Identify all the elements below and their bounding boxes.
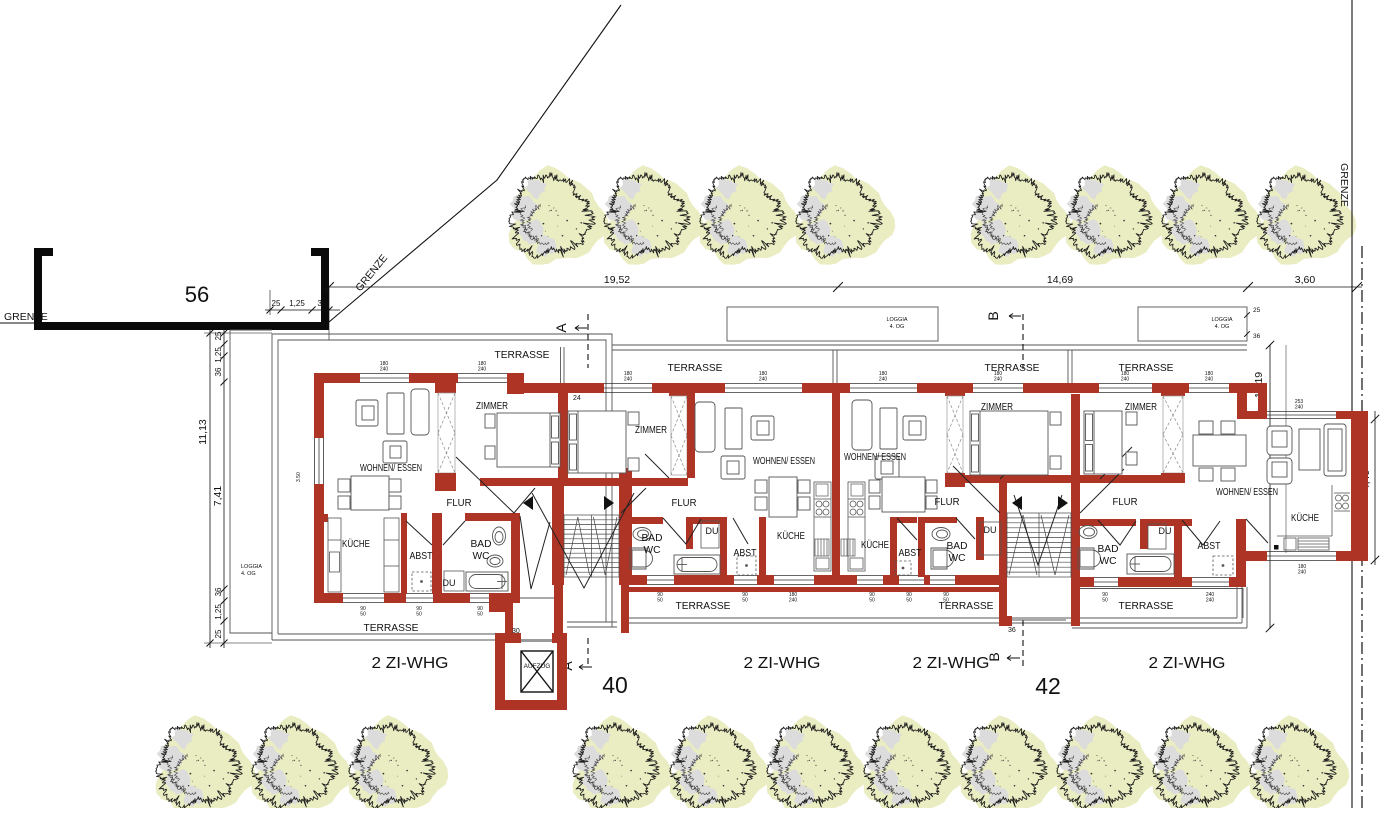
svg-text:24: 24 [573,395,581,402]
svg-text:WC: WC [644,544,661,556]
svg-text:2 ZI-WHG: 2 ZI-WHG [372,655,449,672]
svg-text:4. OG: 4. OG [241,571,256,577]
svg-text:240: 240 [478,367,487,373]
svg-text:19,52: 19,52 [604,274,630,286]
svg-text:50: 50 [906,598,912,604]
svg-text:50: 50 [416,612,422,618]
svg-text:WOHNEN/ ESSEN: WOHNEN/ ESSEN [844,451,906,463]
svg-text:ABST: ABST [410,550,433,562]
svg-text:7,41: 7,41 [212,486,224,507]
svg-text:TERRASSE: TERRASSE [668,362,723,374]
svg-text:DU: DU [984,525,997,536]
svg-text:TERRASSE: TERRASSE [364,622,419,634]
svg-text:42: 42 [1035,673,1061,699]
svg-text:36: 36 [1253,333,1261,340]
svg-text:2 ZI-WHG: 2 ZI-WHG [744,655,821,672]
svg-text:25: 25 [272,299,281,308]
svg-text:50: 50 [657,598,663,604]
svg-text:240: 240 [1298,570,1307,576]
svg-text:36: 36 [1008,627,1016,634]
svg-text:FLUR: FLUR [447,497,472,509]
svg-text:LOGGIA: LOGGIA [241,564,262,570]
svg-text:4. OG: 4. OG [1215,324,1230,330]
svg-text:TERRASSE: TERRASSE [985,362,1040,374]
svg-text:A: A [553,323,569,333]
svg-text:LOGGIA: LOGGIA [1211,317,1232,323]
svg-text:14,69: 14,69 [1047,274,1073,286]
svg-text:36: 36 [214,587,223,596]
svg-text:TERRASSE: TERRASSE [676,600,731,612]
svg-text:240: 240 [879,377,888,383]
svg-text:ABST: ABST [734,547,757,559]
svg-text:11,13: 11,13 [197,419,209,445]
svg-text:240: 240 [1295,405,1304,411]
svg-text:DU: DU [706,526,719,537]
svg-text:KÜCHE: KÜCHE [777,530,805,542]
svg-text:240: 240 [1121,377,1130,383]
svg-text:KÜCHE: KÜCHE [861,539,889,551]
svg-text:ZIMMER: ZIMMER [476,400,508,412]
svg-text:3.50: 3.50 [296,472,302,482]
svg-text:56: 56 [185,282,209,307]
svg-text:240: 240 [789,598,798,604]
svg-text:B: B [985,311,1001,320]
svg-text:1,25: 1,25 [214,347,223,363]
svg-text:50: 50 [1102,598,1108,604]
svg-text:BAD: BAD [642,532,663,544]
svg-text:AUFZUG: AUFZUG [524,663,551,670]
svg-text:TERRASSE: TERRASSE [495,349,550,361]
svg-text:WC: WC [949,552,966,564]
svg-text:WC: WC [473,550,490,562]
svg-text:GRENZE: GRENZE [1338,163,1350,207]
svg-text:50: 50 [869,598,875,604]
svg-text:240: 240 [624,377,633,383]
svg-text:1,25: 1,25 [289,299,305,308]
svg-text:DU: DU [1159,526,1172,537]
svg-text:TERRASSE: TERRASSE [1119,600,1174,612]
svg-text:240: 240 [1206,598,1215,604]
svg-text:FLUR: FLUR [935,496,960,508]
svg-text:1,25: 1,25 [214,604,223,620]
svg-text:BAD: BAD [471,538,492,550]
svg-text:2 ZI-WHG: 2 ZI-WHG [913,655,990,672]
svg-text:40: 40 [602,672,628,698]
svg-text:WOHNEN/ ESSEN: WOHNEN/ ESSEN [753,455,815,467]
svg-text:ABST: ABST [1198,540,1221,552]
svg-text:BAD: BAD [947,540,968,552]
svg-text:25: 25 [214,629,223,638]
svg-text:WOHNEN/ ESSEN: WOHNEN/ ESSEN [360,462,422,474]
svg-text:50: 50 [742,598,748,604]
svg-text:25: 25 [1253,307,1261,314]
svg-text:36: 36 [214,367,223,376]
svg-text:240: 240 [759,377,768,383]
svg-text:2 ZI-WHG: 2 ZI-WHG [1149,655,1226,672]
svg-text:50: 50 [943,598,949,604]
svg-text:LOGGIA: LOGGIA [886,317,907,323]
svg-text:ZIMMER: ZIMMER [1125,401,1157,413]
svg-text:KÜCHE: KÜCHE [342,538,370,550]
svg-text:ZIMMER: ZIMMER [635,424,667,436]
svg-text:4. OG: 4. OG [890,324,905,330]
svg-text:25: 25 [214,331,223,340]
svg-text:50: 50 [360,612,366,618]
svg-text:WOHNEN/ ESSEN: WOHNEN/ ESSEN [1216,486,1278,498]
svg-text:ZIMMER: ZIMMER [981,401,1013,413]
svg-text:36: 36 [318,299,327,308]
svg-text:240: 240 [380,367,389,373]
svg-text:240: 240 [994,377,1003,383]
svg-text:DU: DU [443,578,456,589]
svg-text:ABST: ABST [899,547,922,559]
svg-text:WC: WC [1100,555,1117,567]
svg-text:FLUR: FLUR [1113,496,1138,508]
svg-text:50: 50 [477,612,483,618]
svg-text:3,60: 3,60 [1295,274,1316,286]
svg-text:FLUR: FLUR [672,497,697,509]
svg-text:BAD: BAD [1098,543,1119,555]
svg-text:240: 240 [1205,377,1214,383]
svg-text:30: 30 [512,628,520,635]
svg-text:KÜCHE: KÜCHE [1291,512,1319,524]
